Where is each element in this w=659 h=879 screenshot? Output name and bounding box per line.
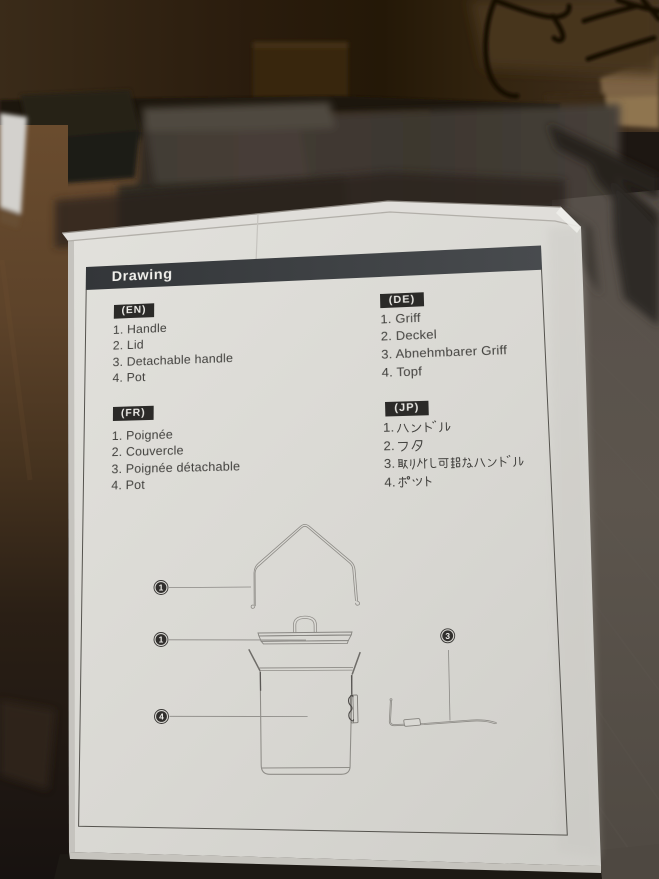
svg-text:1: 1 bbox=[159, 635, 164, 645]
svg-text:3: 3 bbox=[445, 631, 450, 641]
svg-text:1: 1 bbox=[159, 583, 164, 593]
svg-text:4: 4 bbox=[159, 712, 164, 722]
